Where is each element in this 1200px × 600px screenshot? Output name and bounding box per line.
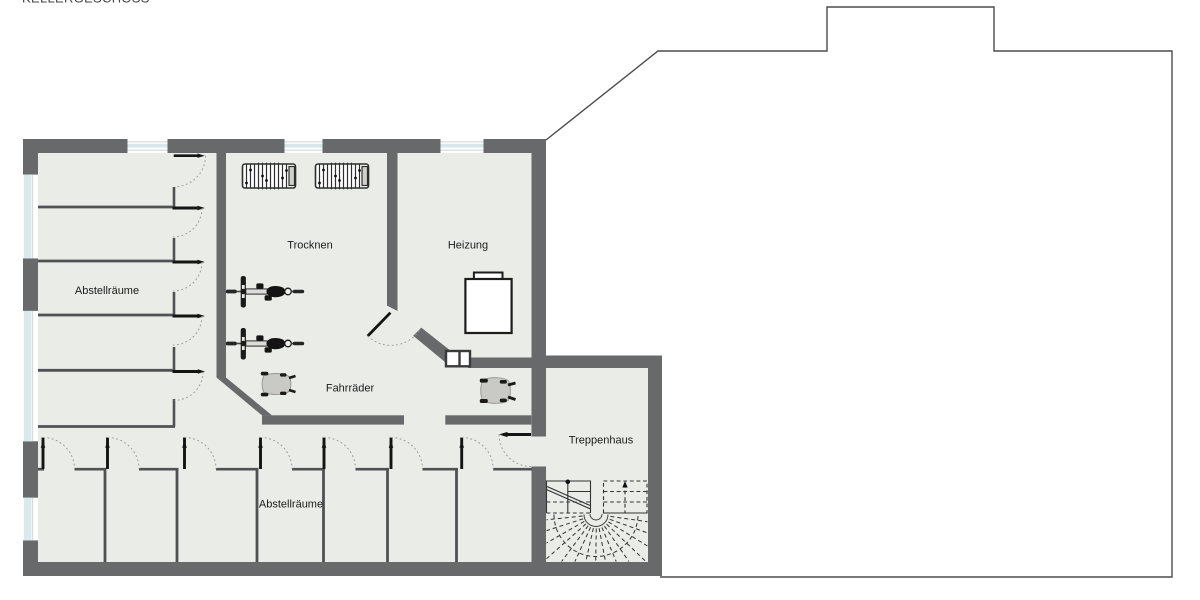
svg-text:Trocknen: Trocknen	[287, 240, 332, 252]
svg-text:Treppenhaus: Treppenhaus	[569, 435, 634, 447]
svg-text:Heizung: Heizung	[448, 240, 488, 252]
svg-text:Fahrräder: Fahrräder	[326, 382, 375, 394]
svg-text:KELLERGESCHOSS: KELLERGESCHOSS	[22, 0, 150, 6]
svg-text:Abstellräume: Abstellräume	[259, 499, 323, 511]
svg-text:Abstellräume: Abstellräume	[75, 285, 139, 297]
